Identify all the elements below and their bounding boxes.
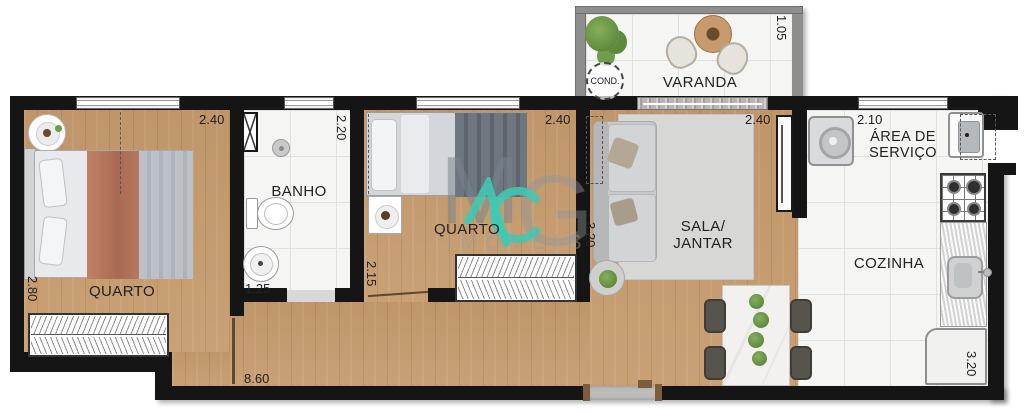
- bedroom2-width-dim: 2.40: [545, 113, 570, 126]
- dining-chair: [704, 346, 726, 380]
- balcony-label: VARANDA: [663, 75, 737, 92]
- kitchen-height-dim: 3.20: [965, 351, 978, 376]
- wall-bottom: [155, 386, 1004, 400]
- balcony-wall-top: [575, 6, 803, 14]
- service-label-line1: ÁREA DE: [870, 130, 936, 146]
- balcony-sliding-door: [637, 97, 768, 110]
- pillow: [371, 119, 397, 191]
- gray-duvet: [139, 151, 193, 279]
- entry-threshold: [588, 386, 660, 400]
- stove-burner: [947, 180, 961, 194]
- dining-chair: [704, 299, 726, 333]
- tank-dashed-outline: [960, 114, 996, 160]
- pillow: [38, 158, 68, 209]
- total-width-dim: 8.60: [244, 372, 269, 385]
- bathroom-label: BANHO: [271, 184, 326, 201]
- kitchen-counter: [940, 222, 987, 327]
- wardrobe-hatch: [458, 257, 574, 278]
- washing-machine: [808, 116, 854, 166]
- balcony-wall-left: [575, 6, 586, 98]
- projection-dashed-line: [368, 114, 369, 194]
- kitchen-label: COZINHA: [854, 256, 924, 273]
- cond-shaft-marker: COND.: [586, 62, 624, 100]
- plate-center: [381, 211, 390, 220]
- balcony-plant: [585, 16, 619, 52]
- balcony-wall-right: [792, 6, 803, 98]
- dining-table: [722, 285, 790, 386]
- toilet-seat: [264, 203, 288, 225]
- bedroom2-window: [416, 97, 520, 109]
- bedroom1-door-leaf: [232, 318, 235, 384]
- kitchen-window: [858, 97, 948, 109]
- bedroom1-window: [76, 97, 180, 109]
- stove-burner: [947, 202, 961, 216]
- wall-living-service: [792, 110, 807, 218]
- projection-dashed-rect: [586, 116, 603, 184]
- toilet-bowl: [257, 197, 294, 230]
- fridge-handle: [781, 125, 783, 203]
- folded-sheet: [401, 115, 429, 193]
- sink-drain: [258, 261, 263, 266]
- floorplan: COND. VARANDA 1.05: [0, 0, 1024, 412]
- side-table: [589, 260, 625, 296]
- entry-door-leaf: [638, 380, 652, 388]
- living-label-line1: SALA/: [681, 219, 726, 236]
- table-plant: [753, 312, 769, 328]
- wall-bathroom-bedroom2: [350, 110, 364, 302]
- bedroom2-nightstand: [368, 196, 402, 234]
- entry-door-jamb: [655, 384, 662, 401]
- double-bed: [34, 150, 192, 278]
- bedroom2-label: QUARTO: [434, 222, 500, 239]
- bedroom1-label: QUARTO: [89, 284, 155, 301]
- dark-blanket: [455, 113, 527, 197]
- bedroom1-nightstand: [28, 114, 66, 152]
- bedroom1-wardrobe: [28, 313, 169, 357]
- wardrobe-hatch: [458, 280, 574, 300]
- bathroom-width-dim: 1.25: [245, 282, 270, 295]
- table-plant: [749, 294, 764, 309]
- living-height-dim: 3.20: [584, 222, 597, 247]
- plate-center: [43, 129, 51, 137]
- corridor-floor-left: [172, 352, 230, 386]
- dining-chair: [790, 299, 812, 333]
- service-width-dim: 2.10: [857, 113, 882, 126]
- stove-burner: [967, 202, 981, 216]
- living-width-dim: 2.40: [745, 113, 770, 126]
- table-plant: [752, 351, 767, 366]
- bedroom1-height-dim: 2.80: [26, 276, 39, 301]
- wall-step-right: [988, 163, 1016, 175]
- kitchen-sink: [947, 256, 983, 299]
- shower-head: [272, 139, 290, 157]
- sliding-door-glass: [643, 103, 762, 105]
- entry-door-jamb: [583, 384, 590, 401]
- ventilation-shaft: [242, 112, 258, 152]
- bedroom2-wardrobe: [455, 254, 577, 302]
- wall-left: [10, 96, 24, 372]
- washer-door: [829, 137, 837, 145]
- bathroom-sink: [243, 246, 279, 282]
- living-label-line2: JANTAR: [673, 236, 733, 253]
- dining-chair: [790, 346, 812, 380]
- refrigerator: [776, 115, 793, 212]
- wardrobe-hatch: [31, 316, 166, 335]
- balcony-dim: 1.05: [775, 15, 788, 40]
- bathroom-height-dim: 2.20: [335, 115, 348, 140]
- bedroom2-height-dim: 2.15: [365, 261, 378, 286]
- side-table-plant: [599, 270, 617, 288]
- pillow: [38, 216, 68, 267]
- bathroom-door-threshold: [287, 290, 335, 302]
- faucet-knob: [983, 268, 992, 277]
- shower-center: [279, 146, 284, 151]
- wardrobe-hatch: [31, 337, 166, 355]
- stove-burner: [966, 179, 982, 195]
- cond-label: COND.: [591, 76, 620, 86]
- service-label-line2: SERVIÇO: [869, 146, 937, 162]
- terracotta-blanket: [87, 151, 143, 279]
- corridor-floor: [230, 302, 590, 386]
- plant-sprig: [55, 125, 62, 132]
- single-bed: [366, 112, 526, 196]
- projection-dashed-line: [120, 112, 121, 194]
- bathroom-window: [284, 97, 334, 109]
- table-plant: [748, 332, 764, 348]
- sink-basin: [954, 263, 972, 288]
- wall-bathroom-bottom-right: [335, 288, 364, 302]
- bedroom1-width-dim: 2.40: [199, 113, 224, 126]
- shaft-x-icon: [244, 114, 256, 150]
- stove: [940, 173, 986, 222]
